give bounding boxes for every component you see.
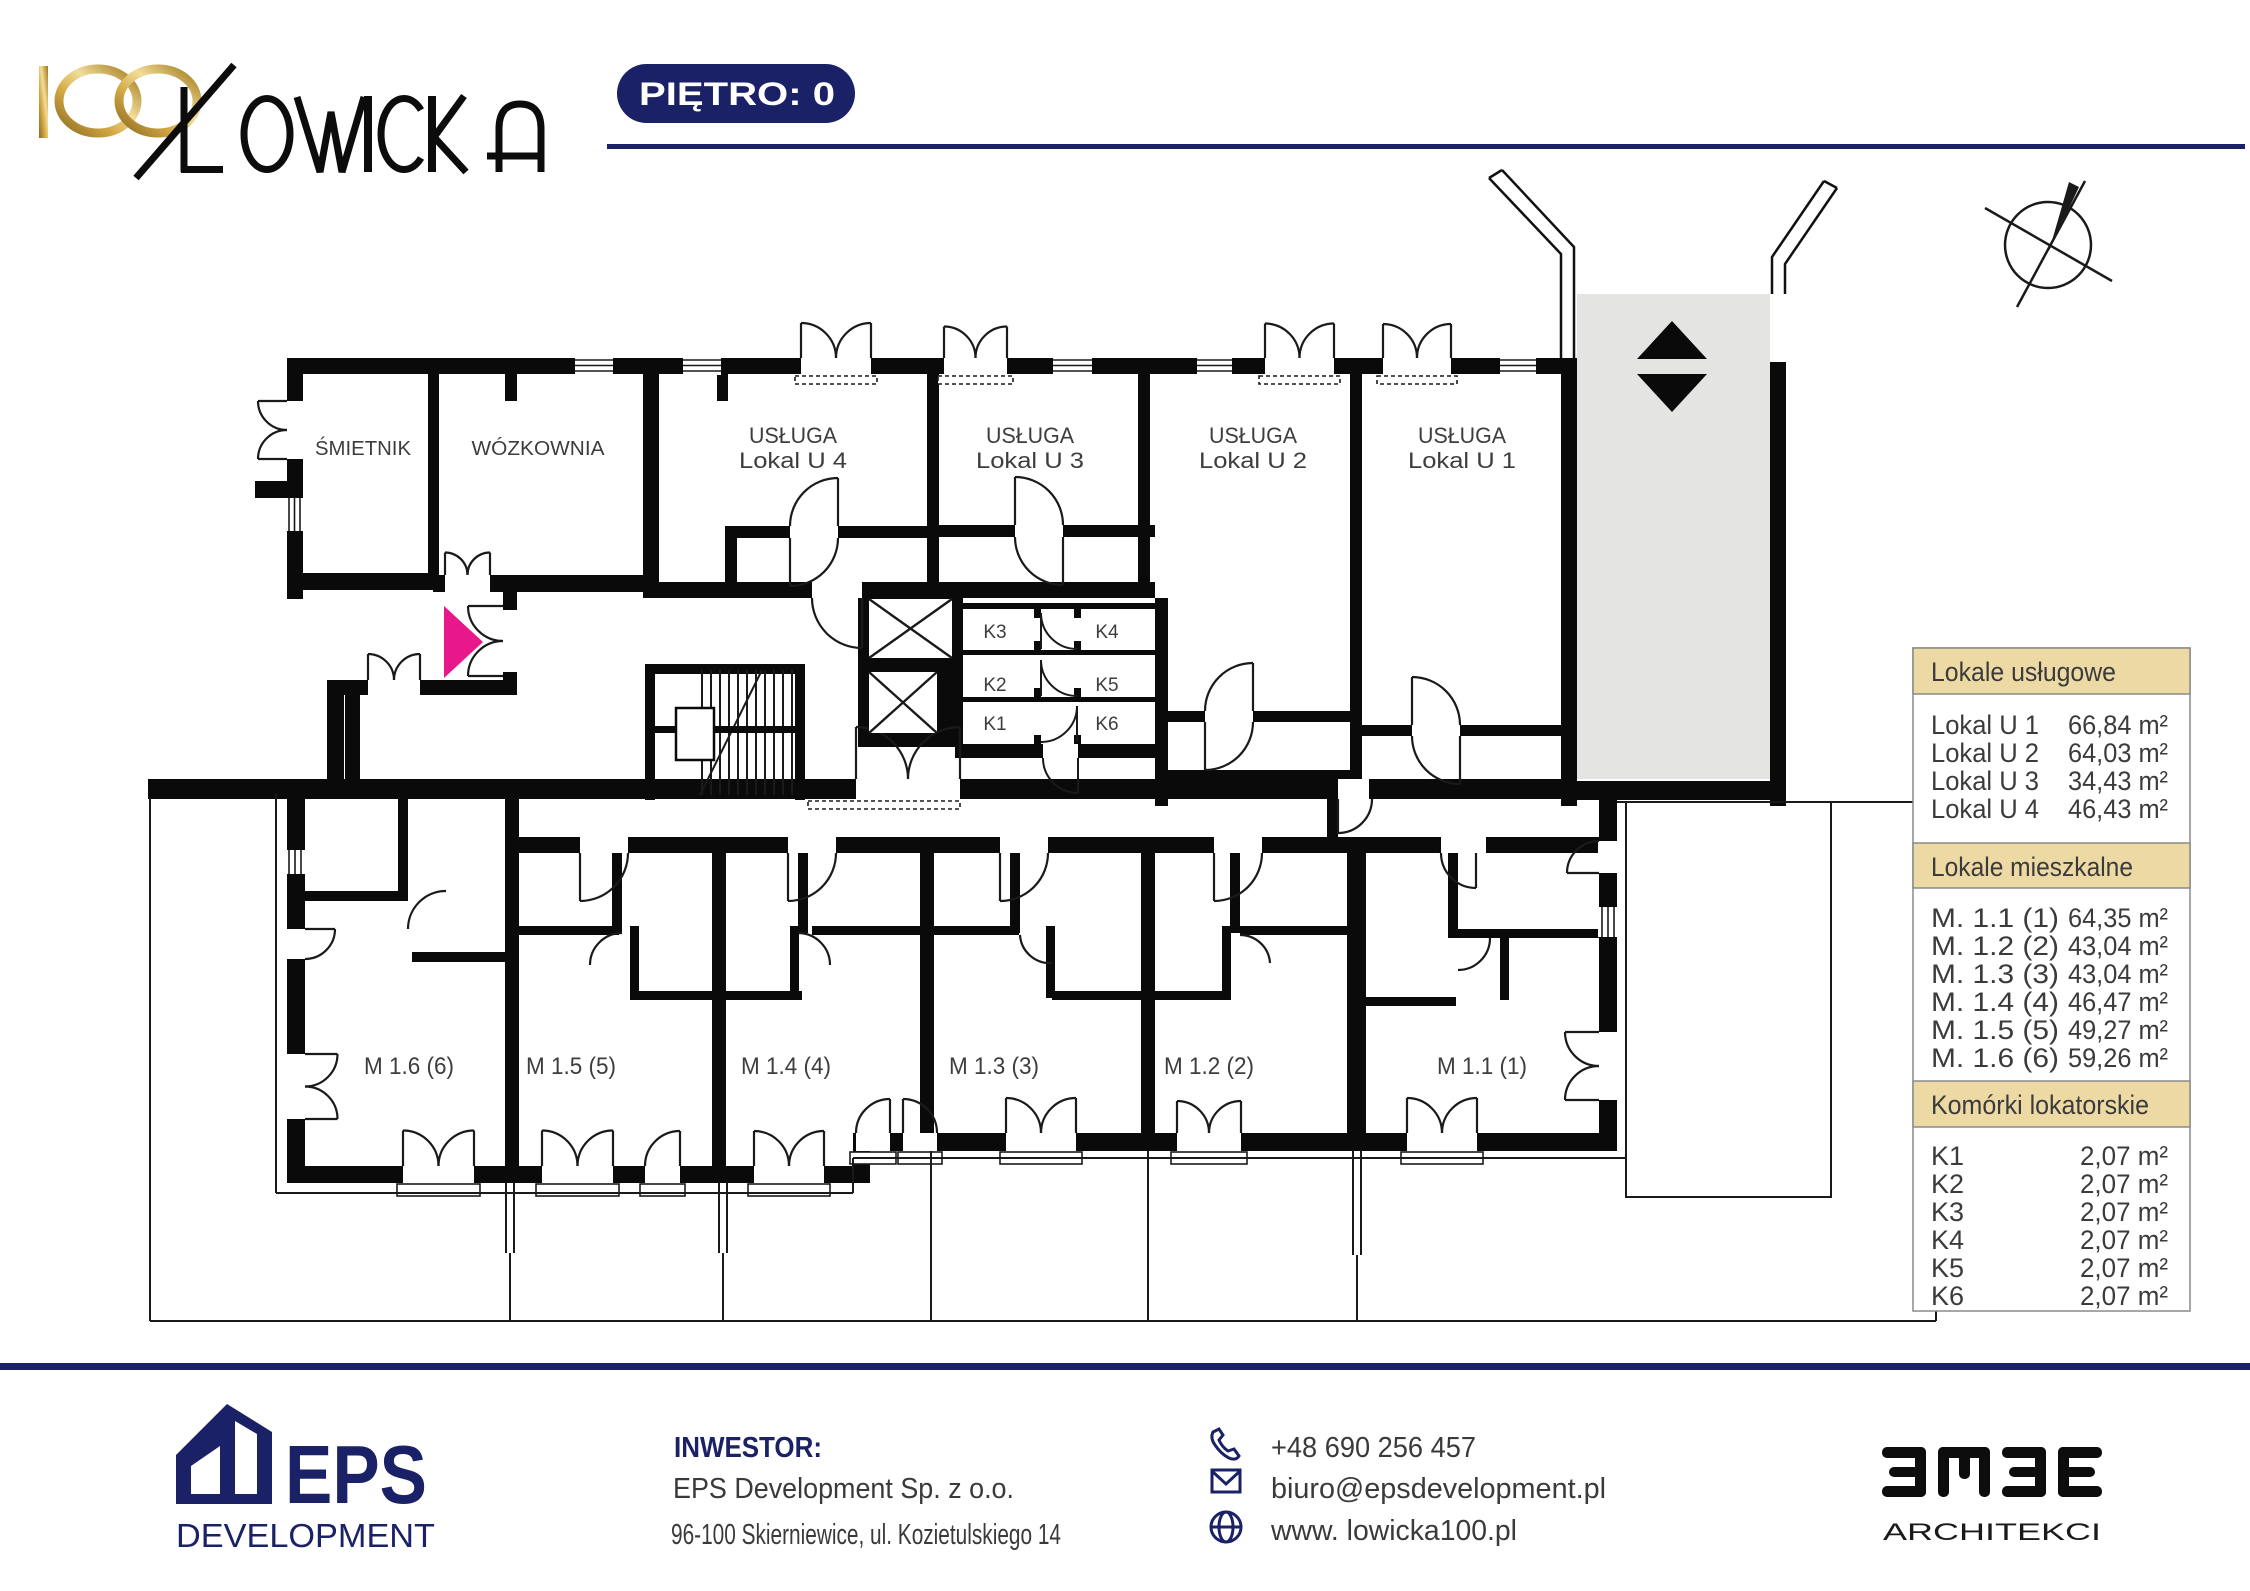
svg-text:M. 1.6 (6): M. 1.6 (6) xyxy=(1931,1043,2059,1073)
svg-text:Lokal U 3: Lokal U 3 xyxy=(976,448,1084,473)
svg-text:K3: K3 xyxy=(983,622,1006,643)
svg-text:K1: K1 xyxy=(983,714,1006,735)
svg-text:Lokal U 4: Lokal U 4 xyxy=(1931,794,2039,824)
svg-text:INWESTOR:: INWESTOR: xyxy=(674,1432,822,1464)
svg-text:M. 1.3 (3): M. 1.3 (3) xyxy=(1931,959,2059,989)
svg-text:64,35 m²: 64,35 m² xyxy=(2068,903,2168,933)
svg-text:Lokal U 2: Lokal U 2 xyxy=(1199,448,1307,473)
svg-text:M. 1.4 (4): M. 1.4 (4) xyxy=(1931,987,2059,1017)
svg-text:46,43 m²: 46,43 m² xyxy=(2068,794,2168,824)
svg-text:USŁUGA: USŁUGA xyxy=(1209,423,1297,448)
svg-text:K6: K6 xyxy=(1931,1281,1964,1311)
svg-text:K5: K5 xyxy=(1931,1253,1964,1283)
svg-text:Lokale mieszkalne: Lokale mieszkalne xyxy=(1931,852,2133,882)
svg-text:2,07 m²: 2,07 m² xyxy=(2080,1141,2168,1171)
svg-text:ARCHITEKCI: ARCHITEKCI xyxy=(1883,1519,2101,1546)
svg-text:www. lowicka100.pl: www. lowicka100.pl xyxy=(1270,1515,1517,1547)
svg-text:Lokal U 1: Lokal U 1 xyxy=(1408,448,1516,473)
svg-text:M. 1.5 (5): M. 1.5 (5) xyxy=(1931,1015,2059,1045)
svg-text:43,04 m²: 43,04 m² xyxy=(2068,959,2168,989)
svg-text:WÓZKOWNIA: WÓZKOWNIA xyxy=(472,437,606,460)
svg-text:biuro@epsdevelopment.pl: biuro@epsdevelopment.pl xyxy=(1271,1473,1606,1505)
svg-text:K1: K1 xyxy=(1931,1141,1964,1171)
svg-text:2,07 m²: 2,07 m² xyxy=(2080,1281,2168,1311)
svg-text:Lokale usługowe: Lokale usługowe xyxy=(1931,657,2116,687)
svg-text:M 1.5 (5): M 1.5 (5) xyxy=(526,1053,616,1080)
svg-text:Lokal U 1: Lokal U 1 xyxy=(1931,710,2039,740)
svg-text:Lokal U 2: Lokal U 2 xyxy=(1931,738,2039,768)
svg-text:66,84 m²: 66,84 m² xyxy=(2068,710,2168,740)
svg-text:59,26 m²: 59,26 m² xyxy=(2068,1043,2168,1073)
svg-text:M 1.6 (6): M 1.6 (6) xyxy=(364,1053,454,1080)
svg-text:EPS: EPS xyxy=(285,1428,427,1521)
svg-text:USŁUGA: USŁUGA xyxy=(1418,423,1506,448)
svg-text:Komórki lokatorskie: Komórki lokatorskie xyxy=(1931,1090,2149,1120)
svg-text:M 1.1 (1): M 1.1 (1) xyxy=(1437,1053,1527,1080)
svg-text:M 1.3 (3): M 1.3 (3) xyxy=(949,1053,1039,1080)
svg-text:K2: K2 xyxy=(1931,1169,1964,1199)
svg-text:EPS Development Sp. z o.o.: EPS Development Sp. z o.o. xyxy=(673,1473,1014,1505)
svg-text:2,07 m²: 2,07 m² xyxy=(2080,1197,2168,1227)
svg-text:Lokal U 4: Lokal U 4 xyxy=(739,448,847,473)
svg-text:34,43 m²: 34,43 m² xyxy=(2068,766,2168,796)
svg-text:K6: K6 xyxy=(1095,714,1118,735)
svg-text:64,03 m²: 64,03 m² xyxy=(2068,738,2168,768)
svg-text:2,07 m²: 2,07 m² xyxy=(2080,1253,2168,1283)
svg-text:43,04 m²: 43,04 m² xyxy=(2068,931,2168,961)
svg-text:ŚMIETNIK: ŚMIETNIK xyxy=(315,436,412,460)
svg-text:M. 1.2 (2): M. 1.2 (2) xyxy=(1931,931,2059,961)
svg-text:2,07 m²: 2,07 m² xyxy=(2080,1225,2168,1255)
svg-text:M. 1.1 (1): M. 1.1 (1) xyxy=(1931,903,2059,933)
svg-text:K5: K5 xyxy=(1095,675,1118,696)
svg-text:USŁUGA: USŁUGA xyxy=(986,423,1074,448)
svg-text:46,47 m²: 46,47 m² xyxy=(2068,987,2168,1017)
svg-text:PIĘTRO: 0: PIĘTRO: 0 xyxy=(639,76,835,112)
svg-text:2,07 m²: 2,07 m² xyxy=(2080,1169,2168,1199)
svg-text:+48 690 256 457: +48 690 256 457 xyxy=(1271,1432,1476,1464)
svg-text:DEVELOPMENT: DEVELOPMENT xyxy=(176,1517,435,1554)
svg-text:49,27 m²: 49,27 m² xyxy=(2068,1015,2168,1045)
svg-text:M 1.2 (2): M 1.2 (2) xyxy=(1164,1053,1254,1080)
svg-text:Lokal U 3: Lokal U 3 xyxy=(1931,766,2039,796)
svg-text:K2: K2 xyxy=(983,675,1006,696)
svg-text:96-100 Skierniewice, ul. Kozie: 96-100 Skierniewice, ul. Kozietulskiego … xyxy=(671,1519,1061,1551)
svg-text:M 1.4 (4): M 1.4 (4) xyxy=(741,1053,831,1080)
svg-text:K4: K4 xyxy=(1095,622,1119,643)
svg-text:K4: K4 xyxy=(1931,1225,1964,1255)
svg-text:K3: K3 xyxy=(1931,1197,1964,1227)
svg-text:USŁUGA: USŁUGA xyxy=(749,423,837,448)
